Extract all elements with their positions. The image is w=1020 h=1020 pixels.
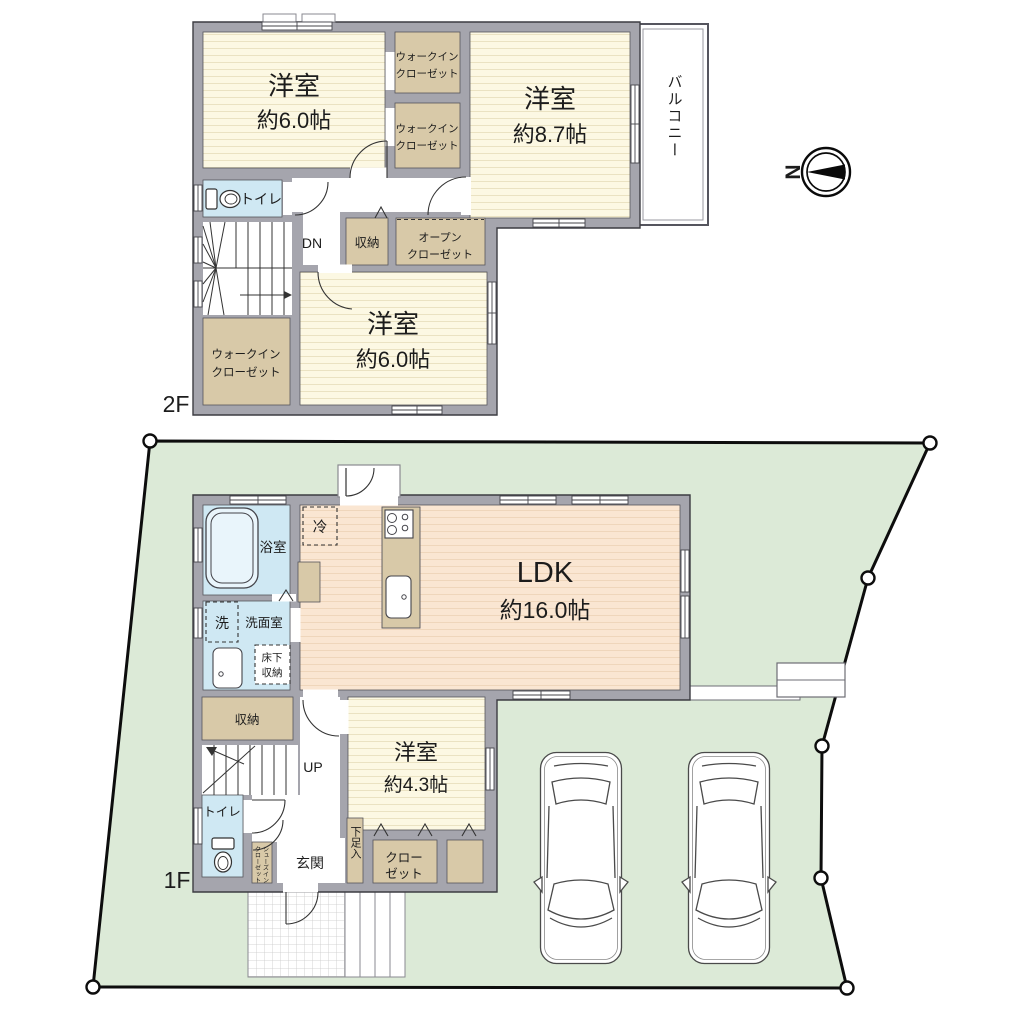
compass-north-arrow-icon [807, 165, 845, 180]
wic-3-line2: クローゼット [212, 366, 281, 379]
washroom-label: 洗面室 [245, 615, 283, 630]
shutter-box-1 [263, 14, 296, 22]
ldk-label: LDK [517, 557, 574, 589]
shoe-cabinet-label: 下足入 [349, 826, 362, 859]
cabinet-icon [298, 562, 320, 602]
floor-plan-page: LDK 約16.0帖 洋室 約4.3帖 浴室 洗面室 洗 冷 床下 収納 収納 … [0, 0, 1020, 1020]
stairs-dn-label: DN [302, 235, 322, 251]
floor-2-plan: 洋室 約6.0帖 洋室 約8.7帖 洋室 約6.0帖 ウォークイン クローゼット… [193, 14, 708, 415]
back-door [338, 465, 400, 506]
bathtub-icon [206, 508, 258, 588]
underfloor-storage-line2: 収納 [262, 666, 283, 679]
shoes-in-closet-line1: シューズイン [262, 846, 269, 883]
wic-2-line1: ウォークイン [396, 123, 459, 135]
bedroom-c-label: 洋室 [367, 309, 419, 339]
car-2 [682, 753, 776, 964]
compass: N [782, 148, 850, 196]
car-1 [534, 753, 628, 964]
bedroom-a-label: 洋室 [268, 71, 320, 101]
floor-plan-drawing: LDK 約16.0帖 洋室 約4.3帖 浴室 洗面室 洗 冷 床下 収納 収納 … [0, 0, 1020, 1020]
toilet-2f-label: トイレ [240, 191, 282, 207]
ldk-size: 約16.0帖 [500, 597, 591, 623]
bathroom-label: 浴室 [260, 539, 287, 555]
shutter-box-2 [302, 14, 335, 22]
room-wic-2 [395, 103, 460, 168]
fridge-label: 冷 [313, 519, 328, 536]
bedroom-b-label: 洋室 [524, 84, 576, 114]
closet-1f-line2: ゼット [385, 867, 423, 881]
bedroom-4-3-size: 約4.3帖 [384, 774, 448, 796]
wic-1-line1: ウォークイン [396, 51, 459, 63]
closet-1f-line1: クロー [385, 851, 423, 865]
underfloor-storage-line1: 床下 [262, 651, 283, 664]
compass-north-label: N [782, 164, 805, 179]
balcony-label: バルコニー [666, 74, 683, 159]
shoes-in-closet-line2: クローゼット [254, 846, 261, 883]
wic-1-line2: クローゼット [396, 68, 459, 80]
storage-2f-label: 収納 [354, 236, 379, 250]
wic-3-line1: ウォークイン [212, 348, 281, 361]
bedroom-4-3-label: 洋室 [394, 740, 438, 765]
open-closet-line2: クローゼット [407, 248, 473, 261]
entrance-porch [248, 892, 405, 977]
open-closet-line1: オープン [418, 231, 461, 244]
bedroom-c-size: 約6.0帖 [356, 347, 431, 372]
bedroom-a-size: 約6.0帖 [257, 108, 332, 133]
wic-2-line2: クローゼット [396, 140, 459, 152]
washer-label: 洗 [215, 615, 229, 631]
room-closet-1f-right [447, 840, 483, 883]
storage-1f-label: 収納 [234, 713, 259, 727]
bedroom-b-size: 約8.7帖 [513, 122, 588, 147]
room-wic-3 [203, 318, 290, 405]
floor1-title: 1F [164, 867, 191, 893]
kitchen-counter-icon [382, 507, 420, 628]
stairs-up-label: UP [303, 759, 322, 775]
entrance-label: 玄関 [296, 855, 324, 871]
floor2-title: 2F [163, 391, 190, 417]
room-ldk [300, 505, 680, 690]
washbasin-icon [213, 648, 242, 688]
hall-front-toilet [252, 795, 302, 842]
toilet-1f-label: トイレ [203, 805, 241, 819]
